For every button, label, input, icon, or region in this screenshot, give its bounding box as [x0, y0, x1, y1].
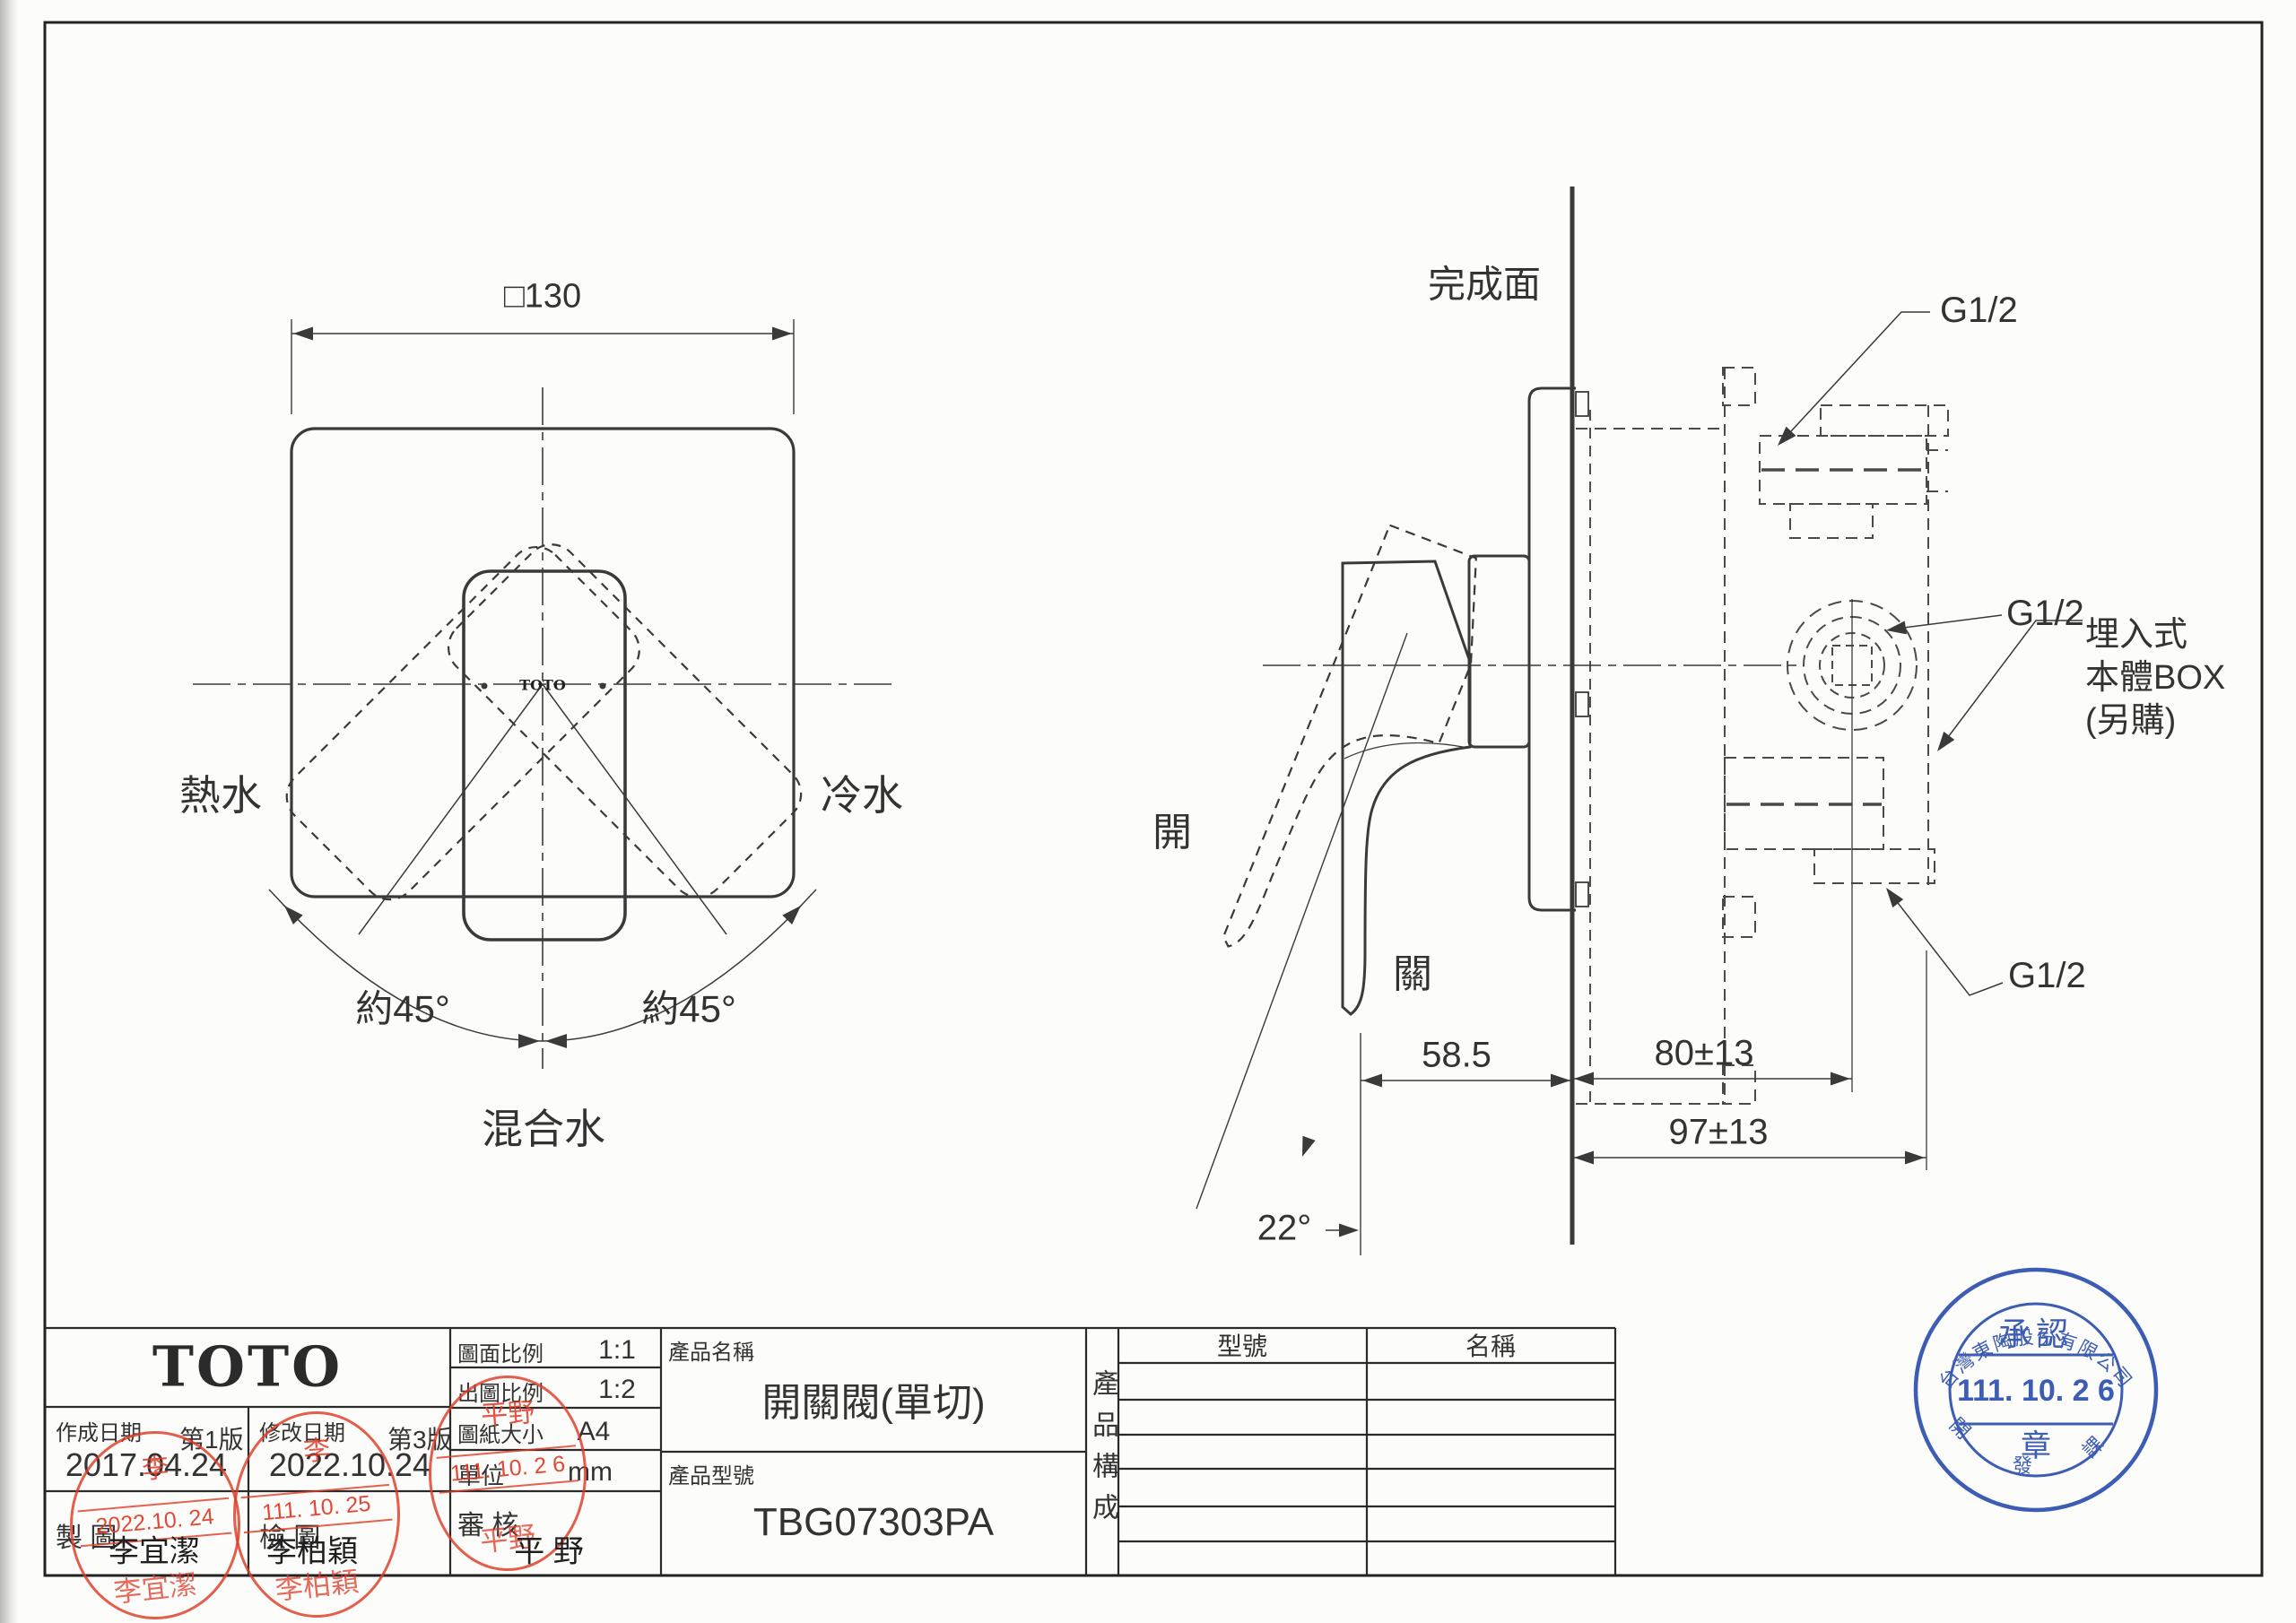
cartridge-body [1469, 556, 1529, 747]
g12-bottom-label: G1/2 [2008, 956, 2086, 996]
cold-water-label: 冷水 [821, 763, 903, 822]
product-code-label: 產品型號 [668, 1458, 754, 1489]
drawn-stamp-top: 李 [141, 1445, 170, 1487]
checked-name-printed: 李柏穎 [266, 1527, 358, 1571]
leader-g12-top [1779, 312, 1930, 444]
checked-stamp: 李 111. 10. 25 李柏穎 [233, 1411, 400, 1618]
product-name-label: 產品名稱 [668, 1334, 754, 1366]
review-stamp-date: 111. 10. 2 6 [436, 1445, 578, 1493]
review-stamp-top: 平野 [480, 1390, 536, 1433]
box-note-line3: (另購) [2085, 692, 2176, 742]
composition-label: 產品構成 [1083, 1369, 1122, 1534]
product-name-value: 開關閥(單切) [761, 1370, 985, 1428]
dim130-arrow-right [772, 327, 792, 341]
handle-dot-left [482, 683, 488, 690]
box-note-line1: 埋入式 [2085, 606, 2187, 655]
handle-toto-logo: TOTO [519, 677, 566, 694]
open-label: 開 [1152, 800, 1192, 857]
angle-reference-line [1196, 633, 1407, 1209]
table-header-model: 型號 [1217, 1327, 1267, 1363]
box-note-line2: 本體BOX [2085, 649, 2225, 699]
close-label: 關 [1393, 942, 1432, 999]
leader-g12-bottom [1889, 891, 2003, 995]
bottom-port-flange [1814, 849, 1935, 883]
dim-97-label: 97±13 [1669, 1113, 1769, 1153]
plot-scale-value: 1:2 [598, 1375, 636, 1405]
reviewer-name-printed: 平 野 [514, 1527, 583, 1571]
angle45-left-label: 約45° [355, 979, 450, 1034]
toto-logo: TOTO [152, 1334, 343, 1400]
leader-g12-mid [1890, 615, 2002, 629]
dim-80-label: 80±13 [1655, 1034, 1754, 1074]
scale-label: 圖面比例 [457, 1336, 544, 1367]
approval-stamp: 台灣東陶股份有限公司 承認 111. 10. 2 6 章 開 發 課 [1909, 1263, 2163, 1522]
drawn-name-printed: 李宜潔 [109, 1527, 200, 1571]
arc-center-arrow-left [518, 1034, 540, 1048]
finished-surface-label: 完成面 [1428, 255, 1541, 309]
leader-box-note [1940, 621, 2083, 748]
dim-58-label: 58.5 [1422, 1036, 1492, 1076]
drawing-sheet: □130 熱水 冷水 約45° 約45° 混合水 TOTO 完成面 開 關 22… [0, 0, 2296, 1623]
angle-arrow-on-line [1296, 1136, 1316, 1159]
table-header-name: 名稱 [1465, 1327, 1516, 1363]
approval-title: 承認 [1998, 1315, 2074, 1352]
angle-arrow-right [1339, 1224, 1359, 1237]
side-view [1196, 187, 2083, 1255]
drawn-stamp: 李 2022.10. 24 李宜潔 [70, 1431, 240, 1619]
angle45-right-label: 約45° [641, 979, 736, 1034]
hot-water-label: 熱水 [179, 763, 262, 822]
scale-value: 1:1 [598, 1335, 636, 1366]
handle-dot-right [600, 683, 606, 690]
g12-mid-label: G1/2 [2006, 594, 2084, 634]
escutcheon-side [1529, 388, 1576, 910]
checked-stamp-top: 李 [302, 1428, 332, 1469]
mount-tab-top [1576, 392, 1588, 416]
g12-top-label: G1/2 [1940, 291, 2018, 331]
dim-130-label: □130 [504, 278, 581, 317]
mixed-water-label: 混合水 [482, 1097, 605, 1156]
mount-tab-bottom [1576, 882, 1588, 907]
dim130-arrow-left [293, 327, 313, 341]
embedded-box [1576, 368, 1948, 1104]
approval-date: 111. 10. 2 6 [1957, 1374, 2115, 1408]
arc-center-arrow-right [545, 1034, 567, 1048]
front-view [193, 319, 899, 1069]
angle-22-label: 22° [1257, 1209, 1312, 1249]
mount-tab-mid [1576, 692, 1588, 716]
product-code-value: TBG07303PA [753, 1500, 994, 1545]
